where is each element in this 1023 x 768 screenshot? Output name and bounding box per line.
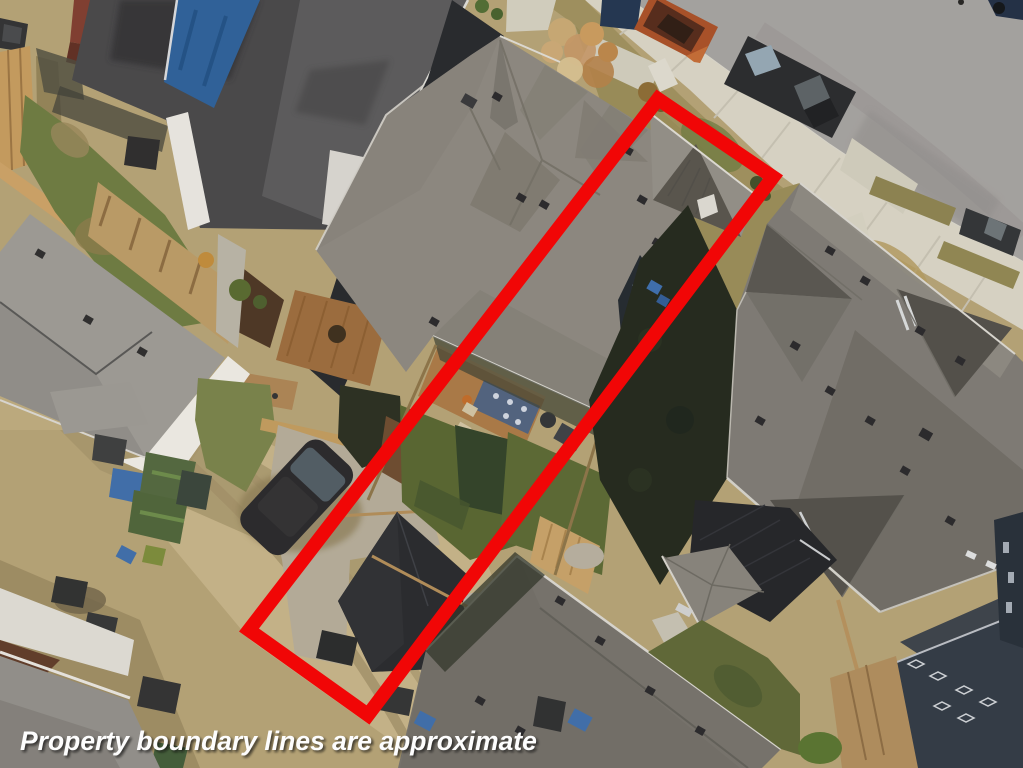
svg-text:Property boundary lines are ap: Property boundary lines are approximate <box>20 726 537 756</box>
